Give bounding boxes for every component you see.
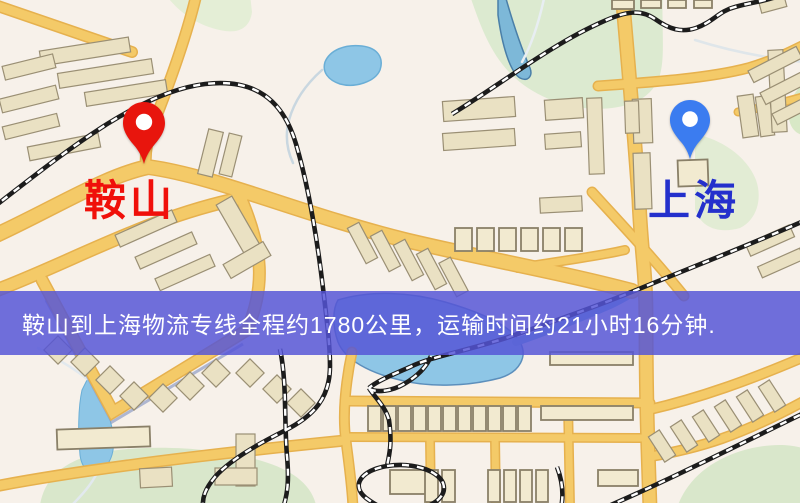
origin-map-pin-icon[interactable] <box>122 101 166 171</box>
route-info-banner: 鞍山到上海物流专线全程约1780公里，运输时间约21小时16分钟. <box>0 291 800 355</box>
map-screenshot: 鞍山到上海物流专线全程约1780公里，运输时间约21小时16分钟. 鞍山 上海 <box>0 0 800 503</box>
route-info-text: 鞍山到上海物流专线全程约1780公里，运输时间约21小时16分钟. <box>22 306 716 340</box>
destination-city-label: 上海 <box>648 181 740 223</box>
origin-city-label: 鞍山 <box>84 181 176 223</box>
destination-map-pin-icon[interactable] <box>669 99 711 166</box>
map-canvas <box>0 0 800 503</box>
